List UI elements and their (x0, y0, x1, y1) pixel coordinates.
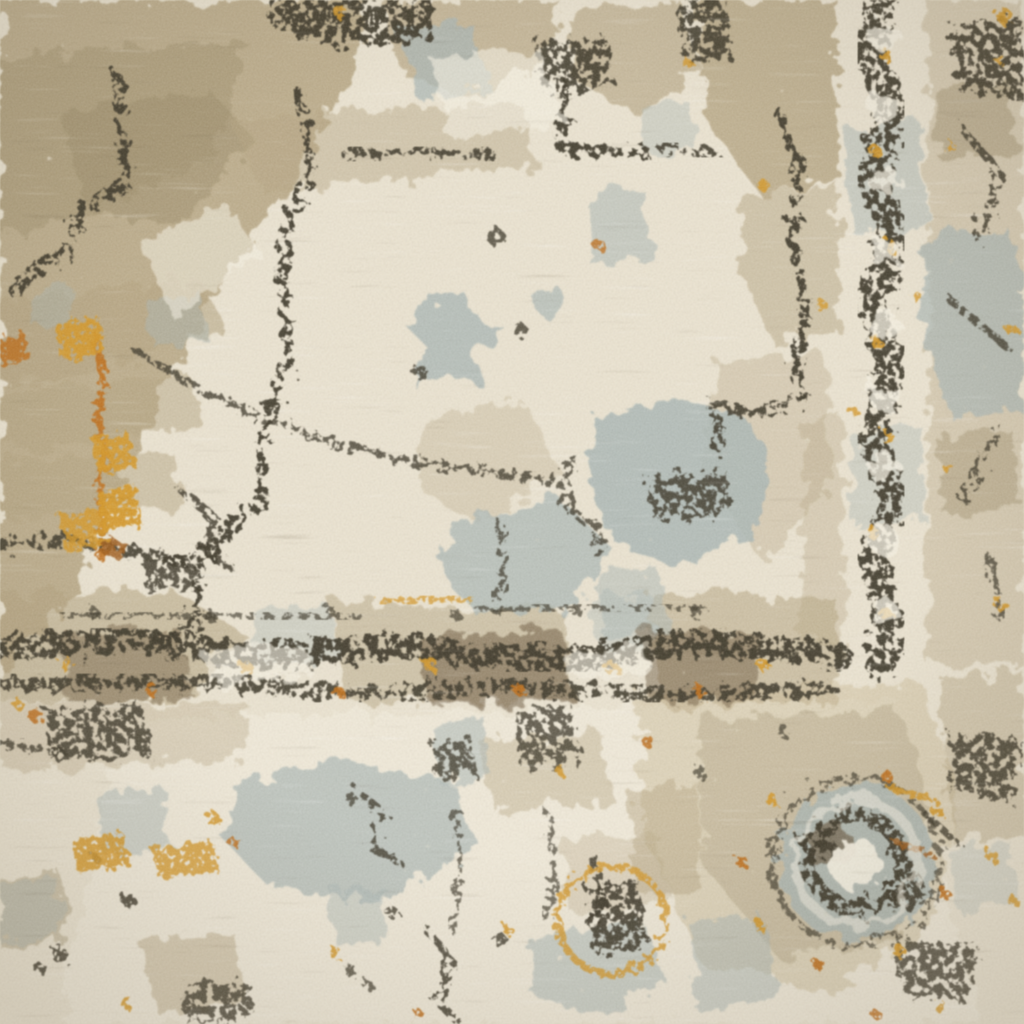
pile-texture-overlays-shape (0, 0, 1024, 1024)
rug-photo-canvas (0, 0, 1024, 1024)
rug-pattern-paint (0, 0, 1024, 1024)
rug-photo (0, 0, 1024, 1024)
pile-texture-overlays (0, 0, 1024, 1024)
screenshot-root (0, 0, 1024, 1024)
